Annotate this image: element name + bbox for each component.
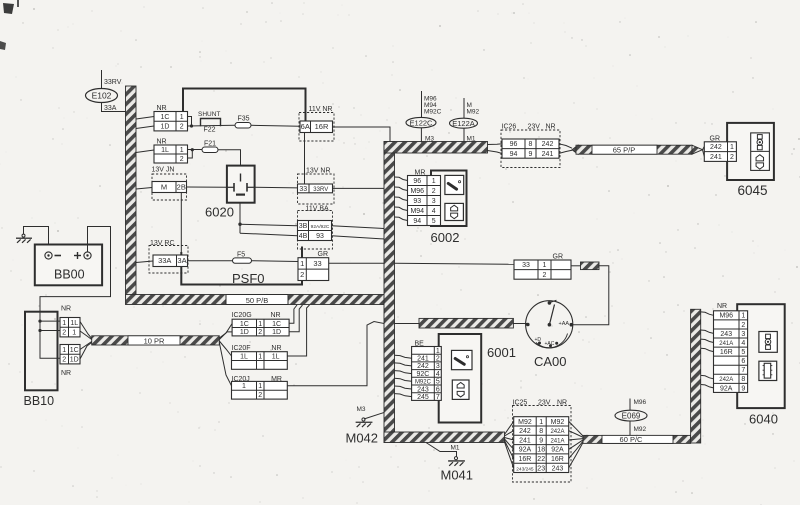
svg-text:5: 5	[436, 379, 440, 386]
svg-text:M92C: M92C	[415, 380, 432, 386]
svg-text:1D: 1D	[272, 329, 281, 336]
svg-text:M96: M96	[634, 399, 647, 406]
svg-text:F5: F5	[237, 252, 245, 259]
svg-text:1: 1	[730, 144, 734, 151]
svg-text:1L: 1L	[161, 147, 169, 154]
svg-text:96: 96	[413, 178, 421, 185]
svg-text:M: M	[161, 182, 167, 191]
svg-text:2: 2	[180, 123, 184, 130]
svg-text:1: 1	[62, 347, 66, 354]
svg-text:M1: M1	[467, 136, 476, 143]
svg-text:23V: 23V	[528, 124, 541, 131]
svg-text:NR: NR	[157, 139, 167, 146]
svg-text:92A: 92A	[551, 447, 564, 454]
svg-text:245: 245	[417, 394, 429, 401]
svg-text:5: 5	[432, 218, 436, 225]
svg-text:1: 1	[539, 419, 543, 426]
svg-text:2: 2	[258, 329, 262, 336]
svg-text:M3: M3	[425, 136, 434, 143]
svg-text:1: 1	[180, 147, 184, 154]
svg-text:1: 1	[258, 321, 262, 328]
svg-text:60 P/C: 60 P/C	[620, 435, 644, 444]
svg-text:+AC: +AC	[545, 341, 555, 347]
svg-text:2B: 2B	[177, 182, 186, 191]
svg-text:33RV: 33RV	[104, 79, 122, 86]
svg-text:92A/92C: 92A/92C	[311, 224, 330, 230]
svg-text:+AA: +AA	[559, 321, 570, 327]
svg-text:65 P/P: 65 P/P	[613, 145, 636, 154]
svg-text:1: 1	[741, 313, 745, 320]
svg-text:F22: F22	[204, 127, 216, 134]
svg-text:2: 2	[543, 272, 547, 279]
svg-text:GR: GR	[318, 251, 329, 258]
svg-text:16R: 16R	[315, 122, 329, 131]
svg-text:3B: 3B	[299, 223, 308, 230]
svg-text:3A: 3A	[177, 256, 186, 265]
svg-text:1: 1	[543, 262, 547, 269]
svg-text:1: 1	[180, 114, 184, 121]
svg-text:M94: M94	[410, 208, 424, 215]
svg-text:1L: 1L	[240, 354, 248, 361]
svg-text:6001: 6001	[487, 345, 516, 360]
svg-text:1: 1	[258, 383, 262, 390]
svg-text:2: 2	[62, 329, 66, 336]
svg-text:11V BA: 11V BA	[306, 206, 330, 213]
svg-text:241: 241	[542, 151, 554, 158]
svg-text:1C: 1C	[70, 347, 79, 354]
svg-text:6020: 6020	[205, 205, 234, 220]
svg-text:E122A: E122A	[452, 119, 475, 128]
svg-text:2: 2	[180, 156, 184, 163]
svg-text:1C: 1C	[272, 321, 281, 328]
svg-text:F21: F21	[204, 141, 216, 148]
svg-text:M92: M92	[551, 419, 565, 426]
svg-text:18: 18	[537, 447, 545, 454]
svg-text:16R: 16R	[519, 456, 532, 463]
svg-text:1D: 1D	[70, 356, 79, 363]
svg-text:8: 8	[529, 141, 533, 148]
svg-text:22: 22	[537, 456, 545, 463]
svg-text:242: 242	[519, 428, 531, 435]
svg-text:IC26: IC26	[502, 124, 517, 131]
svg-text:11V NR: 11V NR	[309, 106, 333, 113]
svg-text:E102: E102	[92, 91, 112, 101]
svg-text:242A: 242A	[550, 429, 564, 435]
svg-text:1: 1	[300, 259, 304, 268]
svg-text:33RV: 33RV	[313, 187, 328, 193]
svg-text:CA00: CA00	[534, 354, 567, 369]
svg-text:242A: 242A	[719, 377, 733, 383]
svg-text:242: 242	[710, 144, 722, 151]
svg-text:6A: 6A	[301, 122, 310, 131]
svg-text:BB00: BB00	[54, 268, 85, 282]
svg-text:2: 2	[300, 270, 304, 279]
svg-text:33: 33	[313, 259, 321, 268]
svg-text:+D: +D	[535, 337, 542, 343]
svg-text:M92C: M92C	[424, 109, 442, 116]
svg-text:1: 1	[432, 178, 436, 185]
svg-text:13V NR: 13V NR	[306, 168, 331, 175]
svg-text:E122C: E122C	[410, 118, 434, 127]
svg-text:7: 7	[741, 367, 745, 374]
svg-text:NR: NR	[271, 312, 281, 319]
svg-text:M92: M92	[634, 426, 647, 433]
svg-text:241: 241	[519, 437, 531, 444]
svg-text:16R: 16R	[551, 456, 564, 463]
svg-text:6: 6	[741, 358, 745, 365]
svg-text:1: 1	[436, 348, 440, 355]
svg-text:8: 8	[741, 376, 745, 383]
svg-text:SHUNT: SHUNT	[198, 111, 220, 118]
svg-text:33A: 33A	[158, 256, 171, 265]
svg-text:M92: M92	[467, 109, 480, 116]
svg-text:4: 4	[432, 208, 436, 215]
svg-text:PSF0: PSF0	[232, 271, 265, 286]
svg-text:IC20G: IC20G	[232, 312, 252, 319]
svg-text:BB10: BB10	[24, 394, 55, 408]
svg-text:M1: M1	[451, 445, 460, 452]
svg-text:6040: 6040	[749, 412, 778, 427]
svg-text:241: 241	[710, 154, 722, 161]
svg-text:243: 243	[552, 465, 564, 472]
svg-text:9: 9	[539, 437, 543, 444]
svg-text:9: 9	[529, 151, 533, 158]
svg-text:92A: 92A	[720, 385, 733, 392]
svg-text:2: 2	[258, 392, 262, 399]
svg-text:NR: NR	[546, 124, 556, 131]
svg-text:94: 94	[413, 218, 421, 225]
svg-text:13V JN: 13V JN	[152, 167, 175, 174]
svg-text:2: 2	[730, 154, 734, 161]
svg-text:242: 242	[417, 363, 429, 370]
svg-text:1: 1	[258, 354, 262, 361]
svg-text:M96: M96	[719, 313, 733, 320]
svg-text:4B: 4B	[299, 233, 308, 240]
svg-text:E069: E069	[622, 411, 641, 420]
svg-text:93: 93	[316, 233, 324, 240]
svg-text:IC20F: IC20F	[232, 345, 251, 352]
svg-text:94: 94	[510, 151, 518, 158]
svg-text:1D: 1D	[240, 329, 249, 336]
svg-text:241: 241	[417, 355, 429, 362]
svg-text:4: 4	[741, 340, 745, 347]
svg-text:50 P/B: 50 P/B	[246, 296, 269, 305]
svg-text:3: 3	[432, 198, 436, 205]
svg-text:2: 2	[741, 322, 745, 329]
svg-text:10 PR: 10 PR	[144, 336, 165, 345]
svg-text:4: 4	[436, 371, 440, 378]
svg-text:241A: 241A	[550, 438, 564, 444]
svg-text:3: 3	[436, 363, 440, 370]
svg-text:5: 5	[741, 349, 745, 356]
svg-text:6045: 6045	[738, 183, 768, 198]
svg-text:242: 242	[542, 141, 554, 148]
svg-text:M3: M3	[357, 406, 366, 413]
svg-text:1: 1	[62, 320, 66, 327]
svg-text:NR: NR	[61, 306, 71, 313]
svg-text:1: 1	[242, 383, 246, 390]
svg-text:92A: 92A	[519, 447, 532, 454]
svg-text:33A: 33A	[104, 105, 117, 112]
svg-text:92C: 92C	[417, 371, 430, 378]
svg-text:243/245: 243/245	[516, 466, 534, 472]
svg-text:NR: NR	[61, 370, 71, 377]
svg-text:M96: M96	[410, 188, 424, 195]
svg-text:16R: 16R	[720, 349, 733, 356]
svg-text:8: 8	[539, 428, 543, 435]
svg-text:6002: 6002	[431, 230, 460, 245]
svg-text:NR: NR	[717, 303, 727, 310]
svg-text:2: 2	[436, 355, 440, 362]
svg-text:2: 2	[432, 188, 436, 195]
svg-text:33: 33	[299, 186, 307, 193]
svg-text:241A: 241A	[719, 341, 733, 347]
svg-text:1C: 1C	[240, 321, 249, 328]
svg-text:243: 243	[720, 331, 732, 338]
svg-text:1D: 1D	[161, 123, 170, 130]
svg-text:F35: F35	[238, 116, 250, 123]
svg-text:M041: M041	[441, 468, 474, 483]
svg-text:96: 96	[510, 141, 518, 148]
svg-text:M042: M042	[346, 431, 379, 446]
svg-text:3: 3	[741, 331, 745, 338]
svg-text:93: 93	[413, 198, 421, 205]
svg-text:243: 243	[417, 386, 429, 393]
svg-text:6: 6	[436, 386, 440, 393]
svg-text:23: 23	[537, 465, 545, 472]
svg-text:7: 7	[436, 394, 440, 401]
svg-text:9: 9	[741, 385, 745, 392]
svg-text:2: 2	[62, 356, 66, 363]
svg-text:1: 1	[72, 329, 76, 336]
svg-text:1L: 1L	[272, 354, 280, 361]
svg-text:M92: M92	[518, 419, 532, 426]
svg-text:33: 33	[522, 262, 530, 269]
svg-text:1C: 1C	[161, 114, 170, 121]
svg-text:NR: NR	[271, 345, 281, 352]
svg-text:1L: 1L	[70, 320, 78, 327]
